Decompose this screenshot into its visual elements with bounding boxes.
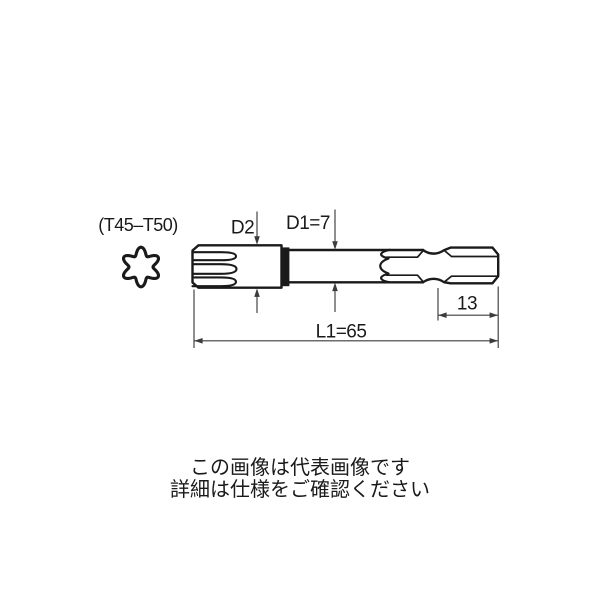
hex-length-arrow-left-icon [438, 312, 446, 318]
disclaimer-notes: この画像は代表画像です 詳細は仕様をご確認ください [0, 456, 600, 500]
hex-length-arrow-right-icon [490, 312, 498, 318]
bit-end-hex-flat-top [445, 251, 498, 257]
hex-length-dimension-label: 13 [457, 294, 477, 315]
bit-transition-band [281, 247, 289, 286]
note-line-1: この画像は代表画像です [0, 456, 600, 478]
d1-arrow-down-icon [332, 241, 338, 250]
bit-hex-transition-wavy-edge [380, 250, 389, 282]
note-line-2: 詳細は仕様をご確認ください [0, 478, 600, 500]
bit-side-view [193, 245, 499, 287]
d2-arrow-down-icon [254, 236, 260, 245]
d1-arrow-up-icon [332, 283, 338, 292]
d2-arrow-up-icon [254, 288, 260, 297]
technical-drawing: (T45–T50) [0, 0, 600, 430]
d1-dimension-label: D1=7 [286, 213, 330, 234]
d2-dimension-label: D2 [231, 218, 254, 239]
product-diagram-image: (T45–T50) [0, 0, 600, 600]
bit-mid-hex-flat-bottom [387, 275, 424, 281]
overall-length-arrow-right-icon [490, 338, 498, 344]
overall-length-arrow-left-icon [194, 338, 202, 344]
size-range-label: (T45–T50) [98, 215, 178, 235]
bit-neck-and-end-hex-outline [423, 248, 498, 284]
torx-cross-section-view [124, 247, 159, 287]
bit-end-hex-flat-bottom [445, 276, 498, 282]
bit-mid-hex-flat-top [387, 251, 424, 257]
overall-length-dimension-label: L1=65 [316, 322, 367, 343]
torx-star-icon [124, 247, 159, 287]
